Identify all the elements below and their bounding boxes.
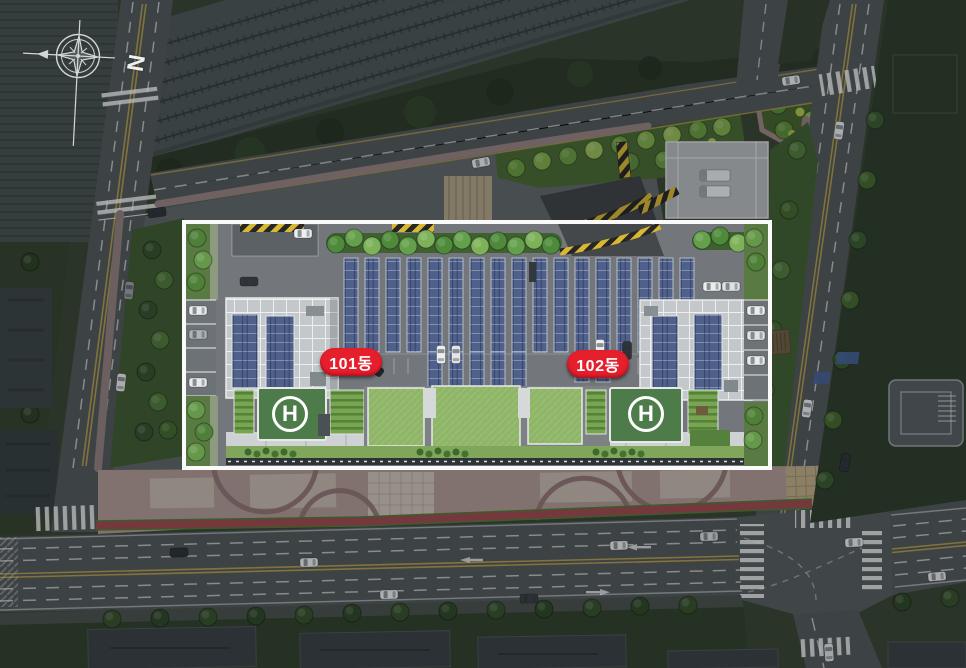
building-102-badge[interactable]: 102동 — [567, 350, 629, 378]
courtyard-lawn — [368, 388, 424, 446]
tower-102-roof — [640, 300, 752, 400]
solar-array — [652, 316, 678, 388]
site-left-strip — [186, 224, 218, 466]
site-right-strip — [744, 224, 768, 466]
building-101-badge[interactable]: 101동 — [320, 348, 382, 376]
site-plan-screenshot: N 101동 102동 H H — [0, 0, 966, 668]
helipad-right-symbol: H — [628, 396, 664, 432]
solar-array — [694, 314, 722, 390]
courtyard-lawn — [528, 388, 582, 444]
site-plan-rendering — [0, 0, 966, 668]
courtyard-lawn — [432, 386, 520, 448]
solar-array — [232, 314, 258, 388]
solar-array — [266, 316, 294, 392]
site-highlight — [184, 222, 770, 468]
tower-101-roof — [226, 298, 338, 398]
helipad-left-symbol: H — [272, 396, 308, 432]
picnic-table — [696, 406, 708, 415]
deck-hatch-door — [529, 262, 536, 282]
north-label: N — [116, 43, 155, 82]
